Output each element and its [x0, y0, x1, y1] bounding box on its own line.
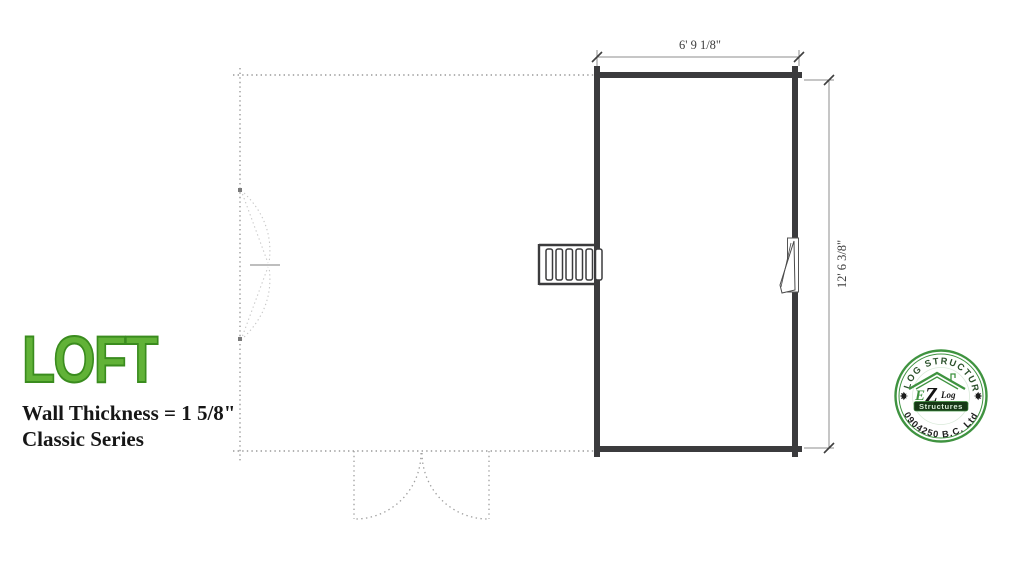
hinge-dot-top [238, 188, 242, 192]
company-stamp: EZ LOG STRUCTURES 0904250 B.C. Ltd E Z L… [893, 348, 989, 444]
dimension-top: 6' 9 1/8" [592, 38, 804, 66]
door-arc-right [422, 453, 488, 519]
ladder-rung [566, 249, 573, 280]
dimension-top-label: 6' 9 1/8" [679, 38, 721, 52]
loft-wall-bottom [594, 446, 802, 452]
ladder-rungs [546, 249, 602, 280]
page-title: LOFT [22, 326, 197, 392]
loft-wall-top [594, 72, 802, 78]
ladder-rung [586, 249, 593, 280]
loft-right-wall-door [780, 238, 799, 293]
bottom-double-door-swing [354, 451, 489, 519]
emblem-word-structures: Structures [919, 402, 963, 411]
title-block: LOFT Wall Thickness = 1 5/8" Classic Ser… [22, 326, 235, 452]
ladder-icon [539, 244, 602, 285]
ladder-rung [546, 249, 553, 280]
dimension-lines [804, 80, 834, 448]
dimension-lines [597, 50, 799, 66]
ladder-rung [576, 249, 583, 280]
loft-floor-plan-drawing: 6' 9 1/8" 12' 6 3/8" [0, 0, 1024, 563]
emblem-word-log: Log [940, 390, 956, 400]
loft-walls [594, 66, 802, 457]
dimension-right-label: 12' 6 3/8" [835, 240, 849, 288]
left-door-leaf-top [241, 190, 268, 263]
left-door-arc-bottom [241, 267, 270, 340]
series-note: Classic Series [22, 426, 235, 452]
left-door-leaf-bottom [241, 267, 268, 340]
ladder-rung [556, 249, 563, 280]
dimension-right: 12' 6 3/8" [804, 75, 849, 453]
hinge-dot-bottom [238, 337, 242, 341]
wall-thickness-note: Wall Thickness = 1 5/8" [22, 400, 235, 426]
left-door-arc-top [241, 190, 270, 263]
floor-plan-page: 6' 9 1/8" 12' 6 3/8" LOFT Wall Thickness… [0, 0, 1024, 563]
door-arc-left [355, 453, 421, 519]
ladder-rung [596, 249, 603, 280]
